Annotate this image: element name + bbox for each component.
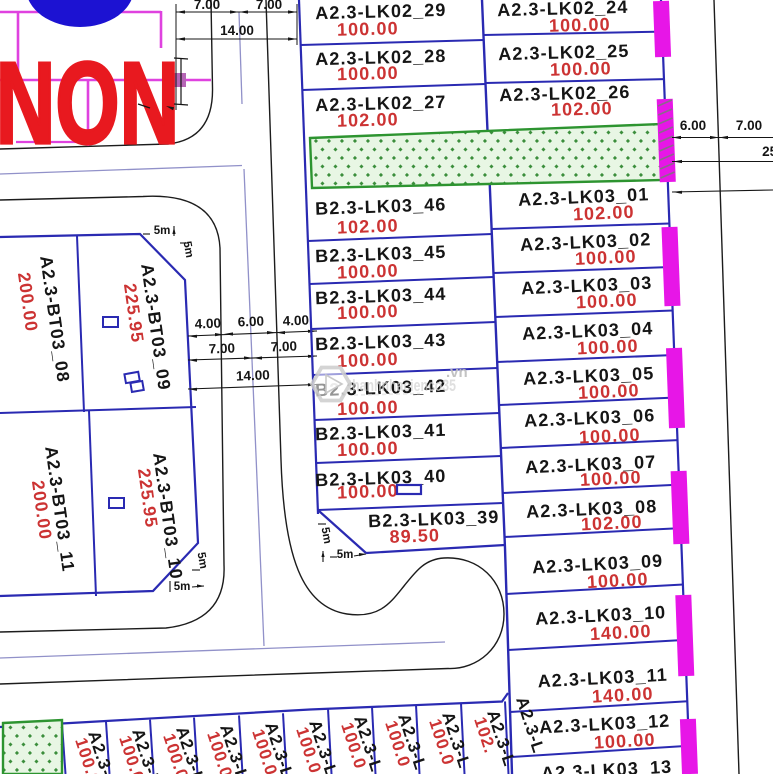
svg-text:NON: NON bbox=[0, 39, 179, 169]
svg-text:102.00: 102.00 bbox=[337, 215, 399, 237]
svg-text:100.00: 100.00 bbox=[337, 480, 399, 502]
svg-text:89.50: 89.50 bbox=[389, 525, 440, 547]
svg-text:7.00: 7.00 bbox=[194, 0, 220, 12]
svg-text:100.00: 100.00 bbox=[337, 349, 399, 371]
svg-text:100.00: 100.00 bbox=[579, 425, 641, 448]
svg-text:100.00: 100.00 bbox=[337, 397, 399, 419]
svg-text:5m: 5m bbox=[174, 581, 191, 593]
svg-text:14.00: 14.00 bbox=[220, 23, 254, 38]
svg-text:14.00: 14.00 bbox=[236, 367, 270, 383]
svg-text:5m: 5m bbox=[337, 549, 354, 561]
svg-text:100.00: 100.00 bbox=[550, 58, 612, 80]
svg-text:4.00: 4.00 bbox=[194, 316, 221, 332]
svg-text:102.00: 102.00 bbox=[573, 202, 635, 225]
svg-text:7.00: 7.00 bbox=[208, 341, 235, 357]
svg-text:100.00: 100.00 bbox=[593, 729, 656, 752]
svg-text:140.00: 140.00 bbox=[591, 683, 654, 706]
svg-text:4.00: 4.00 bbox=[282, 313, 309, 329]
svg-text:100.00: 100.00 bbox=[580, 467, 642, 490]
svg-text:100.00: 100.00 bbox=[337, 18, 399, 40]
svg-text:100.00: 100.00 bbox=[577, 336, 639, 359]
svg-text:102.00: 102.00 bbox=[337, 109, 399, 131]
svg-text:7.00: 7.00 bbox=[256, 0, 282, 12]
svg-text:7.00: 7.00 bbox=[736, 118, 762, 133]
svg-text:100.00: 100.00 bbox=[549, 14, 611, 36]
svg-text:100.00: 100.00 bbox=[578, 380, 640, 403]
svg-text:.vn: .vn bbox=[446, 364, 468, 381]
svg-text:100.00: 100.00 bbox=[575, 246, 637, 269]
svg-text:7.00: 7.00 bbox=[270, 339, 297, 355]
svg-text:100.00: 100.00 bbox=[337, 63, 399, 85]
svg-text:100.00: 100.00 bbox=[337, 301, 399, 323]
svg-text:100.00: 100.00 bbox=[576, 290, 638, 313]
svg-text:thanhnhacienco35: thanhnhacienco35 bbox=[348, 376, 456, 395]
svg-text:100.00: 100.00 bbox=[337, 260, 399, 282]
svg-text:25.00: 25.00 bbox=[762, 144, 773, 159]
svg-text:5m: 5m bbox=[154, 225, 171, 237]
svg-text:100.00: 100.00 bbox=[337, 438, 399, 460]
svg-text:6.00: 6.00 bbox=[680, 118, 706, 133]
svg-text:140.00: 140.00 bbox=[589, 621, 652, 644]
svg-text:100.00: 100.00 bbox=[586, 569, 649, 592]
svg-text:102.00: 102.00 bbox=[581, 512, 643, 535]
svg-text:102.00: 102.00 bbox=[551, 98, 613, 120]
svg-text:6.00: 6.00 bbox=[237, 314, 264, 330]
